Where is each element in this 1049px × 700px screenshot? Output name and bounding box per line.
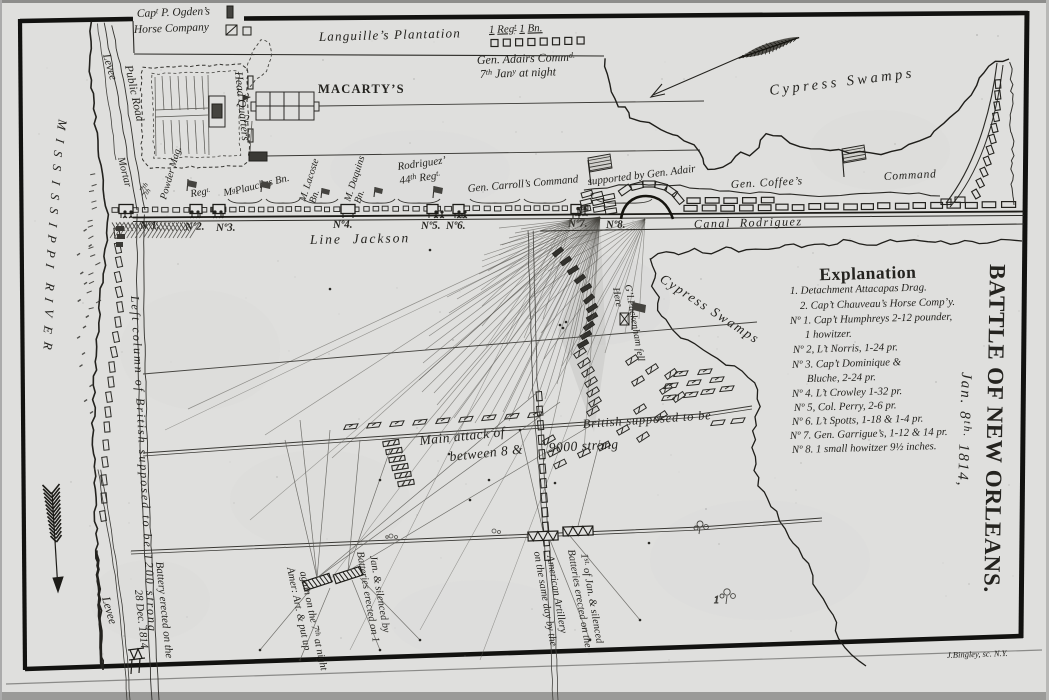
svg-text:1: 1 (714, 595, 719, 606)
svg-text:Nº6.: Nº6. (445, 220, 466, 232)
svg-text:Bluche, 2-24 pr.: Bluche, 2-24 pr. (807, 371, 876, 385)
svg-text:Explanation: Explanation (819, 262, 916, 285)
svg-text:Nº5.: Nº5. (420, 220, 441, 232)
svg-text:2: 2 (244, 113, 250, 125)
svg-text:Capt P. Ogden’s: Capt P. Ogden’s (137, 4, 211, 20)
svg-text:1 howitzer.: 1 howitzer. (805, 328, 852, 341)
svg-text:Line Jackson: Line Jackson (309, 230, 410, 247)
svg-text:Nº3.: Nº3. (215, 222, 236, 234)
svg-text:Canal Rodriguez: Canal Rodriguez (694, 214, 803, 231)
svg-text:MACARTY’S: MACARTY’S (318, 82, 405, 96)
svg-text:J.Bingley, sc. N.Y.: J.Bingley, sc. N.Y. (947, 648, 1008, 660)
svg-text:Nº4.: Nº4. (332, 219, 353, 231)
